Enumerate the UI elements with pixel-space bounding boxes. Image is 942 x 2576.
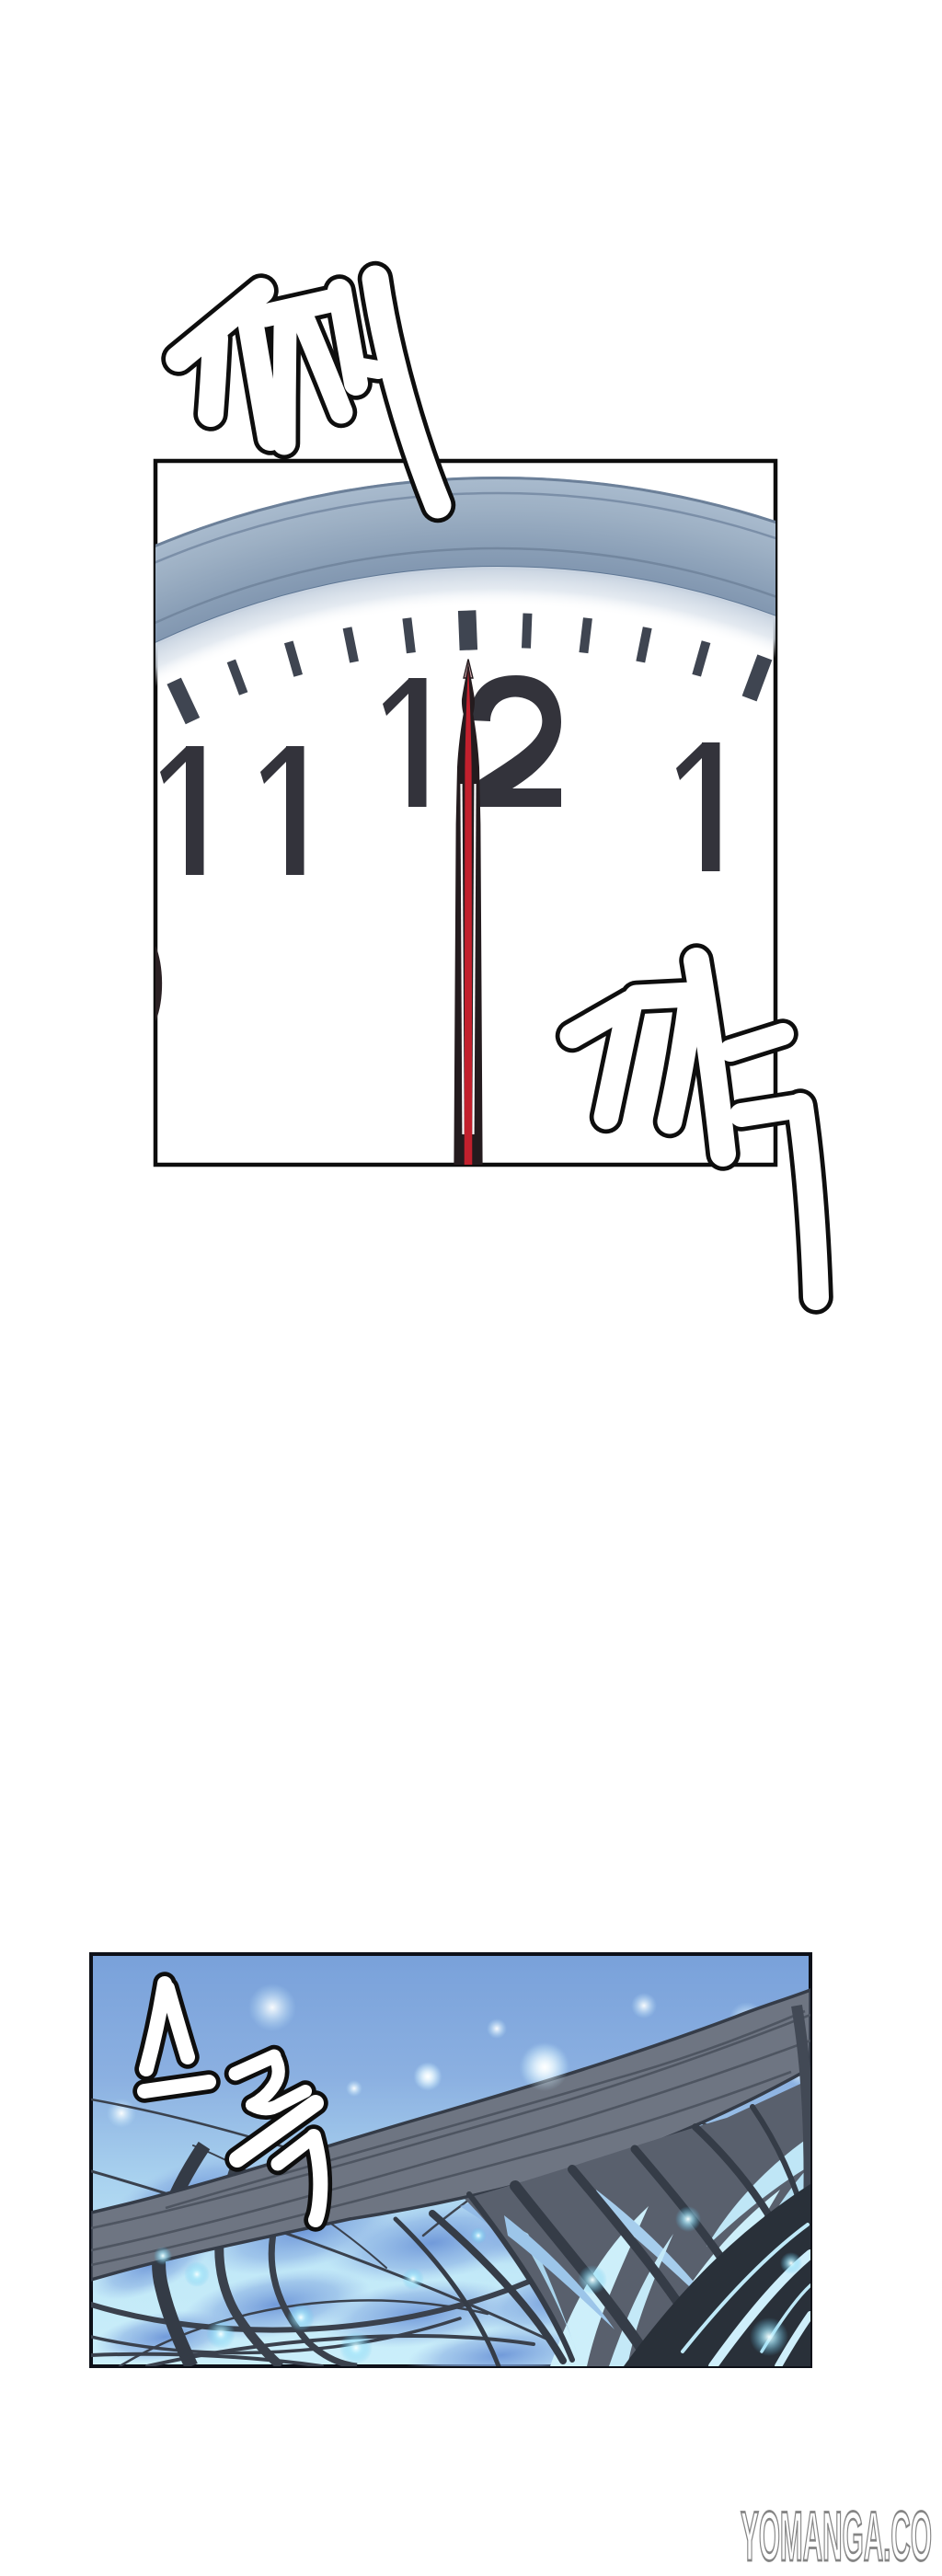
svg-text:YOMANGA.CO: YOMANGA.CO [741,2498,932,2576]
